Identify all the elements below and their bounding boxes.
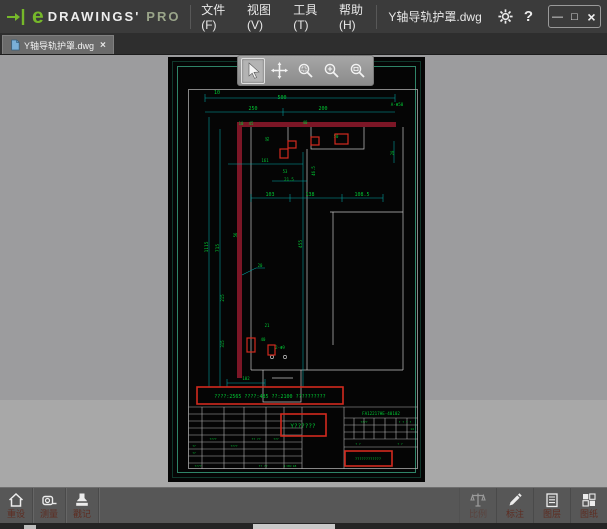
svg-text:?? ??: ?? ??: [251, 437, 260, 441]
svg-text:455: 455: [298, 240, 304, 248]
svg-text:????: ????: [360, 420, 367, 424]
zoom-fit-icon: [348, 61, 367, 80]
taskbar-nub: [24, 525, 36, 529]
maximize-button[interactable]: □: [566, 6, 583, 27]
svg-text:50: 50: [334, 134, 339, 139]
svg-text:??: ??: [192, 451, 196, 455]
cursor-arrow-icon: [244, 61, 263, 80]
document-icon: [10, 39, 20, 51]
minimize-button[interactable]: —: [549, 6, 566, 27]
svg-text:102: 102: [242, 376, 250, 381]
logo-arrow-icon: [6, 6, 30, 28]
svg-text:315: 315: [220, 340, 225, 348]
svg-text:500: 500: [277, 95, 286, 101]
gear-icon: [497, 8, 514, 25]
tab-label: Y轴导轨护罩.dwg: [24, 39, 94, 52]
home-icon: [7, 491, 25, 509]
drawing-sheet[interactable]: 10500250200A-Φ5010454095502016146.55321.…: [168, 57, 425, 482]
svg-text:??: ??: [192, 444, 196, 448]
taskbar-edge: [0, 523, 607, 529]
layers-button[interactable]: 图层: [533, 488, 570, 524]
zoom-window-tool-button[interactable]: [293, 58, 317, 84]
svg-text:????: ????: [209, 437, 216, 441]
scale-button[interactable]: 比例: [459, 488, 496, 524]
svg-text:138: 138: [305, 192, 314, 198]
menu-help[interactable]: 帮助(H): [329, 0, 376, 33]
drawing-viewport[interactable]: 10500250200A-Φ5010454095502016146.55321.…: [0, 55, 607, 487]
edrawings-window: e DRAWINGS' PRO 文件(F) 视图(V) 工具(T) 帮助(H) …: [0, 0, 607, 529]
stamp-icon: [73, 491, 91, 509]
select-tool-button[interactable]: [241, 58, 265, 84]
menu-view[interactable]: 视图(V): [237, 0, 283, 33]
svg-text:????:2565 ????:485 ??:2100 ???: ????:2565 ????:485 ??:2100 ??????????: [214, 394, 325, 400]
zoom-tool-button[interactable]: [320, 58, 344, 84]
svg-text:1:06:18: 1:06:18: [284, 464, 297, 468]
layers-label: 图层: [543, 509, 561, 519]
svg-text:53: 53: [283, 169, 288, 174]
window-controls: — □ ×: [548, 5, 601, 28]
pan-tool-button[interactable]: [267, 58, 291, 84]
stamp-label: 戳记: [73, 509, 91, 519]
svg-text:103: 103: [265, 192, 274, 198]
svg-text:?? ??: ?? ??: [258, 464, 267, 468]
reset-button[interactable]: 重设: [0, 488, 33, 524]
svg-text:Y??????: Y??????: [290, 423, 316, 430]
logo-e: e: [32, 5, 44, 29]
scale-label: 比例: [469, 509, 487, 519]
sheet-svg: 10500250200A-Φ5010454095502016146.55321.…: [168, 57, 425, 482]
sheets-label: 图纸: [580, 509, 598, 519]
svg-text:161: 161: [261, 158, 269, 163]
scale-balance-icon: [469, 491, 487, 509]
svg-text:20: 20: [390, 150, 395, 155]
tab-bar: Y轴导轨护罩.dwg ×: [0, 33, 607, 55]
svg-text:40: 40: [261, 337, 266, 342]
svg-text:21.5: 21.5: [284, 177, 294, 182]
svg-text:95: 95: [265, 136, 270, 141]
sheets-button[interactable]: 图纸: [570, 488, 607, 524]
svg-text:20: 20: [258, 263, 263, 268]
settings-button[interactable]: [494, 4, 517, 30]
svg-text:? ? ? ?: ? ? ? ?: [399, 420, 412, 424]
svg-text:? ?: ? ?: [397, 442, 403, 446]
document-tab[interactable]: Y轴导轨护罩.dwg ×: [2, 35, 114, 54]
svg-text:10: 10: [214, 90, 220, 96]
svg-text:? ?: ? ?: [355, 442, 361, 446]
svg-text:45: 45: [249, 121, 254, 126]
help-button[interactable]: ?: [517, 4, 540, 30]
svg-text:2-Φ9: 2-Φ9: [275, 345, 285, 350]
svg-text:A-Φ50: A-Φ50: [391, 102, 404, 107]
svg-text:46.5: 46.5: [311, 166, 316, 176]
pencil-icon: [506, 491, 524, 509]
svg-text:1115: 1115: [204, 241, 210, 252]
svg-text:???: ???: [273, 437, 279, 441]
zoom-fit-tool-button[interactable]: [346, 58, 370, 84]
markup-annotation-boxes: ????:2565 ????:485 ??:2100 ??????????Y??…: [197, 387, 392, 466]
svg-text:715: 715: [215, 244, 221, 252]
tab-close-icon[interactable]: ×: [100, 40, 106, 51]
taskbar-segment: [253, 524, 335, 529]
pan-icon: [270, 61, 289, 80]
markup-button[interactable]: 标注: [496, 488, 533, 524]
markup-label: 标注: [506, 509, 524, 519]
logo-name: DRAWINGS': [48, 9, 141, 24]
reset-label: 重设: [7, 509, 25, 519]
svg-text:250: 250: [248, 106, 257, 112]
svg-text:40: 40: [303, 120, 308, 125]
logo-tier: PRO: [146, 9, 180, 24]
svg-text:14: 14: [410, 427, 414, 431]
app-logo: e DRAWINGS' PRO: [0, 0, 190, 33]
menu-tools[interactable]: 工具(T): [283, 0, 329, 33]
sheets-grid-icon: [580, 491, 598, 509]
svg-text:200: 200: [318, 106, 327, 112]
close-button[interactable]: ×: [583, 6, 600, 27]
svg-text:108.5: 108.5: [354, 192, 369, 198]
svg-text:56: 56: [233, 232, 238, 237]
zoom-icon: [322, 61, 341, 80]
svg-text:215: 215: [220, 294, 225, 302]
part-number-text: FA12217HE-40102: [362, 411, 400, 416]
svg-text:10: 10: [239, 121, 244, 126]
zoom-window-icon: [296, 61, 315, 80]
measure-button[interactable]: 测量: [33, 488, 66, 524]
svg-text:????: ????: [230, 444, 237, 448]
svg-text:????: ????: [194, 464, 201, 468]
stamp-button[interactable]: 戳记: [66, 488, 99, 524]
measure-label: 测量: [40, 509, 58, 519]
view-toolbar: [237, 55, 374, 86]
title-block: [189, 407, 419, 469]
layers-icon: [543, 491, 561, 509]
menu-file[interactable]: 文件(F): [191, 0, 237, 33]
svg-text:????????????: ????????????: [355, 457, 381, 461]
title-bar: e DRAWINGS' PRO 文件(F) 视图(V) 工具(T) 帮助(H) …: [0, 0, 607, 33]
measure-icon: [40, 491, 58, 509]
menu-bar: 文件(F) 视图(V) 工具(T) 帮助(H): [191, 0, 375, 33]
document-title: Y轴导轨护罩.dwg: [376, 8, 493, 25]
part-geometry: [251, 127, 403, 402]
svg-text:21: 21: [265, 323, 270, 328]
